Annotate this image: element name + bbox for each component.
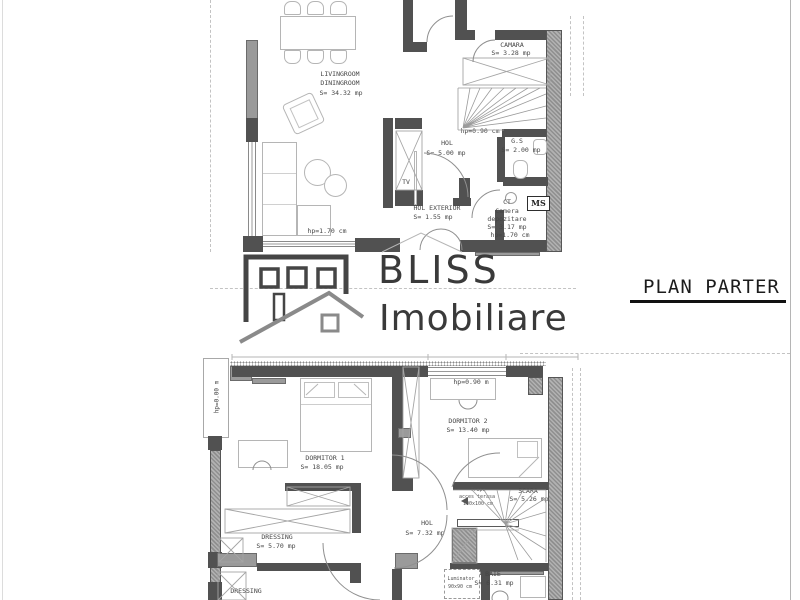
room-area: S= 1.55 mp [413,214,452,221]
room-area: S= 18.05 mp [300,464,343,471]
dash-line [583,16,584,96]
stair-handrail [457,519,519,527]
desk [238,440,288,468]
wall [285,483,353,491]
dash-line [570,16,571,96]
wall [392,478,413,491]
single-bed [468,438,542,478]
wall [395,553,418,569]
tv-unit [414,151,417,205]
sofa [262,142,297,236]
wall [403,42,427,52]
sheet-left-border [2,0,3,600]
room-area: S= 34.32 mp [319,90,362,97]
toilet [513,160,528,179]
room-label: DRESSING [261,534,292,541]
wall [398,428,411,438]
dash-line [210,0,211,252]
ct-label: CT [503,199,511,206]
wall [243,236,263,252]
wall [395,118,422,129]
chair [307,50,324,64]
wall [217,553,257,567]
chair [330,1,347,15]
dining-table [280,16,356,50]
brand-name-secondary: Imobiliare [379,298,568,339]
chair [284,50,301,64]
hatch-note: acces terasa [459,495,495,501]
room-area: S= 13.40 mp [446,427,489,434]
wall [455,30,475,40]
wall [208,582,222,600]
armchair [282,92,326,136]
wall [383,118,393,208]
wall [495,30,546,40]
room-label: DININGROOM [320,80,359,87]
tv-label: TV [402,179,410,186]
wall [350,563,361,583]
chair [330,50,347,64]
room-area: S= 5.70 mp [256,543,295,550]
wall [392,569,402,600]
room-area: S= 6.31 mp [474,580,513,587]
wall [257,563,361,571]
wall [452,528,477,563]
height-note: hp=1.70 cm [490,232,529,239]
exterior-wall [548,377,563,600]
wall [528,377,543,395]
dash-line [572,368,573,600]
wall [208,436,222,450]
washbasin [520,576,546,598]
brand-name: BLISS [378,248,500,292]
height-note: hp=0.00 m [214,381,221,414]
height-note: hp=1.70 cm [307,228,346,235]
room-area: S= 7.32 mp [405,530,444,537]
room-label: LIVINGROOM [320,71,359,78]
window-sill [252,378,286,384]
wall [503,177,548,186]
wall [246,40,258,120]
wall [506,366,543,377]
room-label: G.S [511,138,523,145]
skylight-label: Luminator [447,577,474,583]
exterior-wall [210,450,221,600]
height-note: hp=0.90 m [453,379,488,386]
room-area: S= 3.28 mp [491,50,530,57]
hatch-note: Trapa [470,488,485,494]
window [263,241,355,247]
dash-line [580,368,581,600]
room-label: HOL EXTERIOR [414,205,461,212]
dash-line [520,353,790,354]
plan-title: PLAN PARTER [643,276,780,298]
skylight-label: 90x90 cm [448,585,472,591]
house-logo-icon [240,257,363,342]
room-area: S= 5.26 mp [509,496,548,503]
room-label: BAIE [485,571,501,578]
hatch-note: 100x100 cm [463,502,493,508]
floorplan-sheet: LIVINGROOM DININGROOM S= 34.32 mp CAMARA… [0,0,800,600]
wall [502,129,546,137]
plan-title-underline [630,300,786,303]
room-label: DRESSING [230,588,261,595]
wall [392,366,403,478]
wall [497,137,505,182]
wall [246,118,258,142]
window [248,142,256,237]
window [428,367,506,376]
exterior-wall [546,30,562,252]
room-label: HOL [441,140,453,147]
room-label: DORMITOR 2 [448,418,487,425]
sheet-right-border [790,0,791,600]
ms-box: MS [527,196,550,211]
chair [307,1,324,15]
room-area: S= 2.00 mp [501,147,540,154]
room-area: S= 5.00 mp [426,150,465,157]
room-label: HOL [421,520,433,527]
double-bed [300,378,372,452]
side-table [324,174,347,197]
chair [284,1,301,15]
wall [352,483,361,533]
room-label: DORMITOR 1 [305,455,344,462]
height-note: hp=0.90 cm [460,128,499,135]
